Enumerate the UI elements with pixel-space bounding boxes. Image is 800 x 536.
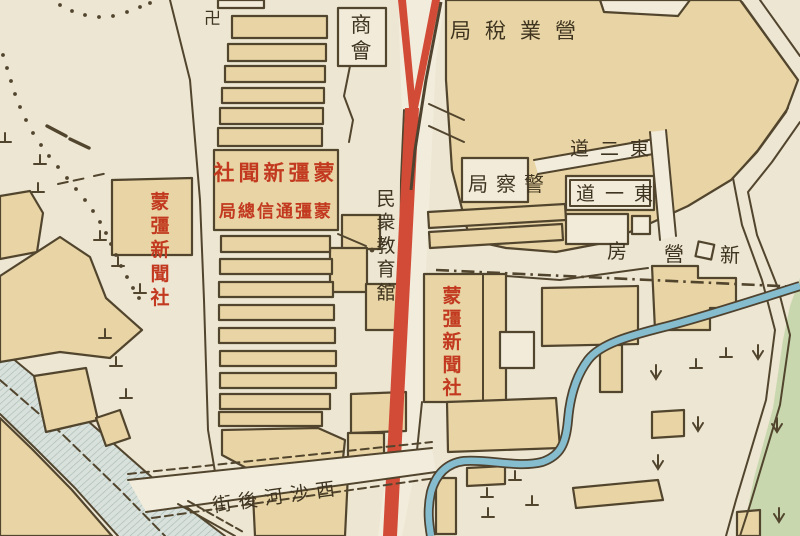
news-agency-right-block: [424, 274, 506, 402]
map-canvas: 卍 商會 局稅業營 社聞新彊蒙 局總信通彊蒙 蒙彊新聞社 蒙彊新聞社 民衆教育舘…: [0, 0, 800, 536]
label-east-first-road: 道一東: [576, 183, 663, 205]
small-barracks-square: [696, 241, 715, 259]
label-police-bureau: 局察警: [468, 173, 552, 196]
label-new-barracks-fang: 房: [607, 240, 627, 263]
label-east-second-road: 道二東: [570, 138, 660, 160]
label-mengjiang-communication-general-bureau: 局總信通彊蒙: [219, 201, 333, 221]
temple-mark-icon: 卍: [204, 9, 221, 28]
label-new-barracks-ying: 營: [664, 243, 684, 266]
label-business-tax-bureau: 局稅業營: [450, 19, 590, 43]
label-new-barracks-xin: 新: [720, 244, 740, 267]
label-mengjiang-news-agency-hq: 社聞新彊蒙: [213, 161, 339, 185]
barracks-rows: [214, 16, 338, 426]
historical-city-map: 卍 商會 局稅業營 社聞新彊蒙 局總信通彊蒙 蒙彊新聞社 蒙彊新聞社 民衆教育舘…: [0, 0, 800, 536]
label-mengjiang-news-agency-west: 蒙彊新聞社: [149, 191, 169, 309]
label-peoples-education-hall: 民衆教育舘: [376, 189, 395, 304]
label-mengjiang-news-agency-east: 蒙彊新聞社: [441, 285, 461, 399]
